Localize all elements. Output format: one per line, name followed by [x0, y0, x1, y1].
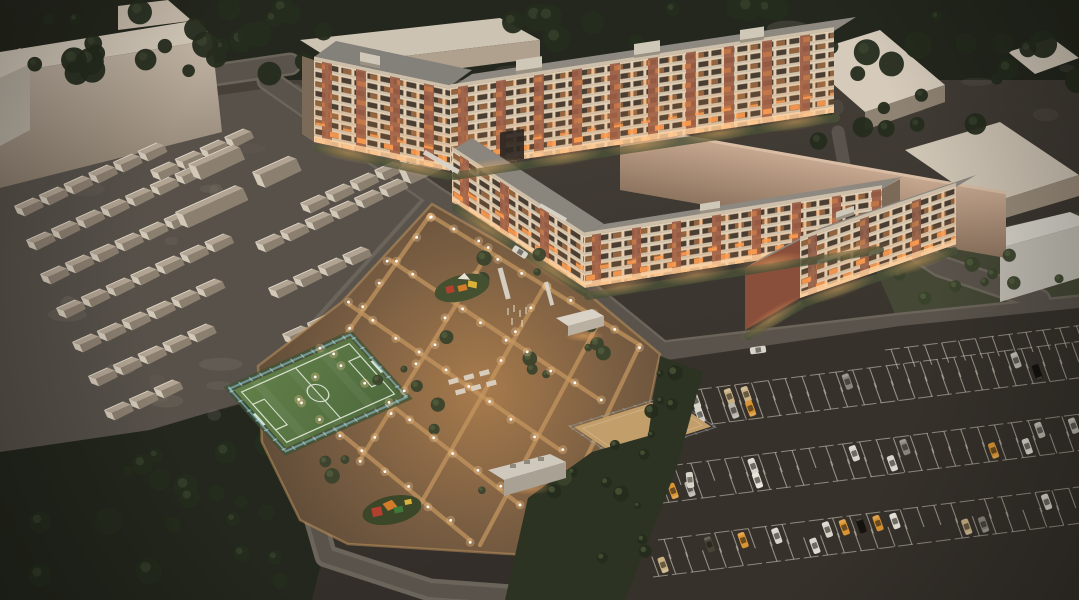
aerial-render-view	[0, 0, 1079, 600]
car-roof	[687, 477, 693, 483]
car-roof	[755, 347, 761, 353]
vignette	[0, 0, 1079, 600]
scene-svg	[0, 0, 1079, 600]
